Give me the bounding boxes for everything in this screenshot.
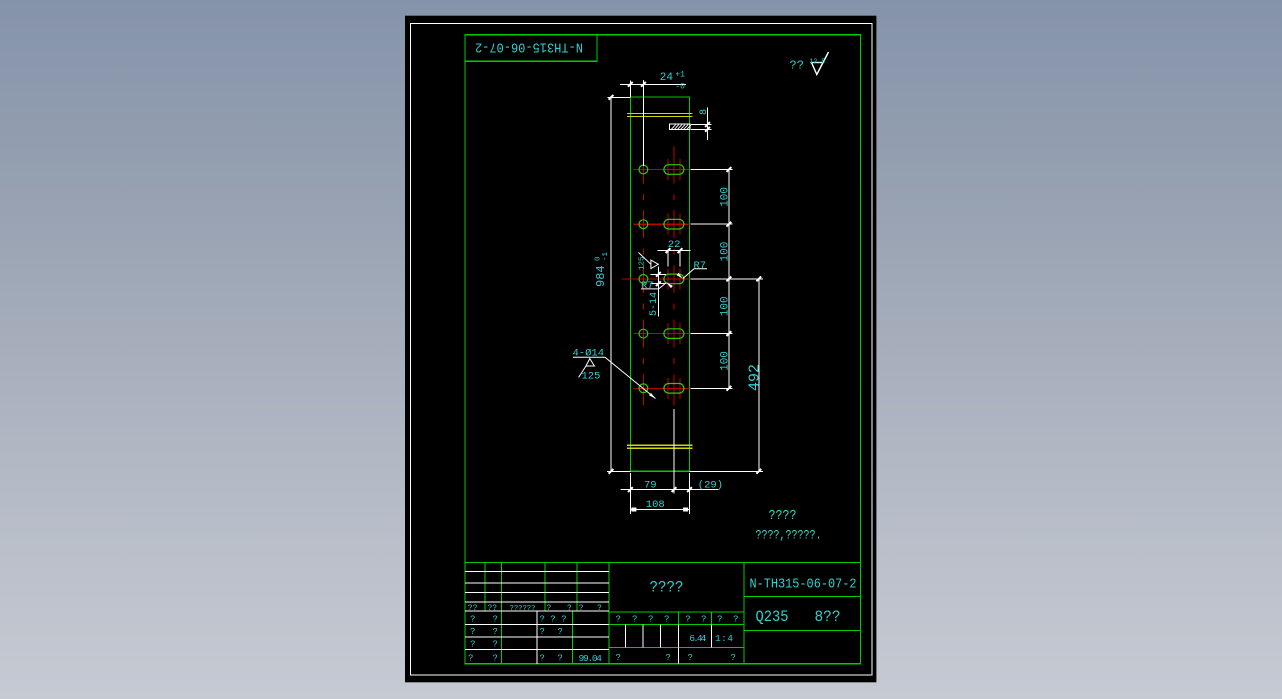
svg-text:?: ?: [685, 615, 690, 625]
svg-text:?: ?: [540, 654, 545, 664]
svg-text:?: ?: [733, 615, 738, 625]
svg-text:12.5: 12.5: [810, 58, 826, 65]
svg-text:?: ?: [470, 615, 475, 625]
svg-text:?: ?: [470, 640, 475, 650]
svg-text:?: ?: [558, 654, 563, 664]
svg-text:??????: ??????: [510, 605, 536, 613]
svg-text:1:4: 1:4: [715, 633, 733, 644]
svg-text:4-Ø14: 4-Ø14: [573, 348, 605, 360]
svg-text:?: ?: [567, 604, 572, 613]
svg-text:?: ?: [493, 615, 498, 625]
svg-text:?: ?: [616, 615, 621, 625]
svg-text:(29): (29): [698, 480, 723, 492]
svg-text:?: ?: [493, 627, 498, 637]
svg-text:100: 100: [719, 296, 731, 316]
svg-text:8: 8: [699, 109, 710, 115]
svg-text:984: 984: [594, 265, 608, 287]
svg-text:?: ?: [579, 604, 584, 613]
svg-text:?: ?: [558, 627, 563, 637]
svg-text:100: 100: [719, 187, 731, 207]
svg-text:6.44: 6.44: [689, 633, 706, 644]
svg-text:5-14: 5-14: [649, 292, 660, 316]
svg-text:N-TH315-06-07-2: N-TH315-06-07-2: [475, 39, 583, 55]
svg-text:492: 492: [747, 364, 764, 391]
svg-text:R7: R7: [641, 280, 654, 292]
svg-text:?: ?: [632, 615, 637, 625]
svg-text:22: 22: [668, 239, 681, 251]
svg-text:8??: 8??: [815, 608, 841, 626]
svg-text:?: ?: [717, 615, 722, 625]
svg-text:????,?????.: ????,?????.: [756, 528, 822, 543]
svg-text:?: ?: [648, 615, 653, 625]
svg-text:24: 24: [660, 72, 674, 84]
svg-text:?: ?: [688, 653, 693, 663]
svg-text:79: 79: [644, 479, 657, 491]
svg-text:125: 125: [582, 370, 601, 382]
svg-text:?: ?: [731, 653, 736, 663]
svg-text:125: 125: [639, 256, 647, 270]
svg-text:N-TH315-06-07-2: N-TH315-06-07-2: [750, 577, 857, 593]
svg-text:??: ??: [488, 604, 498, 613]
svg-text:????: ????: [769, 508, 797, 524]
svg-text:?: ?: [493, 654, 498, 664]
svg-text:100: 100: [719, 242, 731, 262]
svg-text:?: ?: [701, 615, 706, 625]
svg-text:?: ?: [470, 627, 475, 637]
svg-text:?: ?: [616, 653, 621, 663]
svg-text:?: ?: [547, 604, 552, 613]
svg-text:+1: +1: [675, 71, 685, 80]
svg-text:?: ?: [493, 640, 498, 650]
svg-text:??: ??: [790, 59, 804, 73]
svg-text:?: ?: [666, 653, 671, 663]
svg-text:?: ?: [468, 654, 473, 664]
svg-text:??: ??: [468, 604, 478, 613]
svg-text:108: 108: [646, 499, 665, 511]
svg-text:?: ?: [540, 627, 545, 637]
svg-text:99.04: 99.04: [579, 653, 603, 664]
svg-text:?: ?: [597, 604, 602, 613]
svg-text:? ? ?: ? ? ?: [540, 615, 567, 625]
svg-text:?: ?: [664, 615, 669, 625]
svg-text:100: 100: [719, 351, 731, 371]
svg-text:Q235: Q235: [756, 608, 789, 626]
svg-text:R7: R7: [694, 260, 707, 272]
svg-text:????: ????: [650, 579, 684, 597]
svg-text:-0: -0: [675, 83, 685, 92]
